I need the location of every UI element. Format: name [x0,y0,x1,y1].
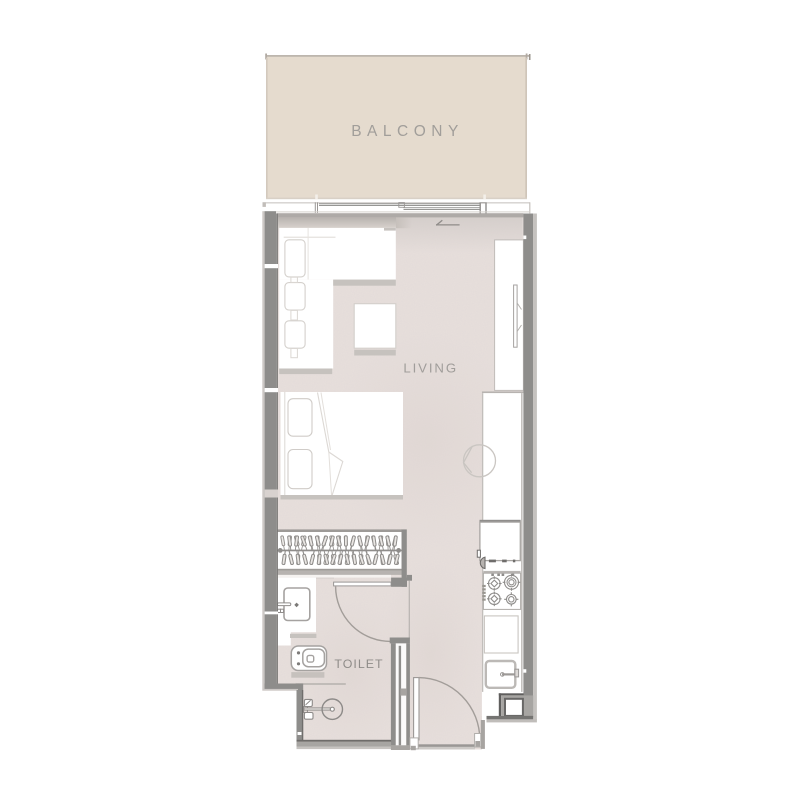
svg-text:BALCONY: BALCONY [351,123,464,140]
svg-text:LIVING: LIVING [403,361,458,376]
svg-text:TOILET: TOILET [334,657,383,671]
